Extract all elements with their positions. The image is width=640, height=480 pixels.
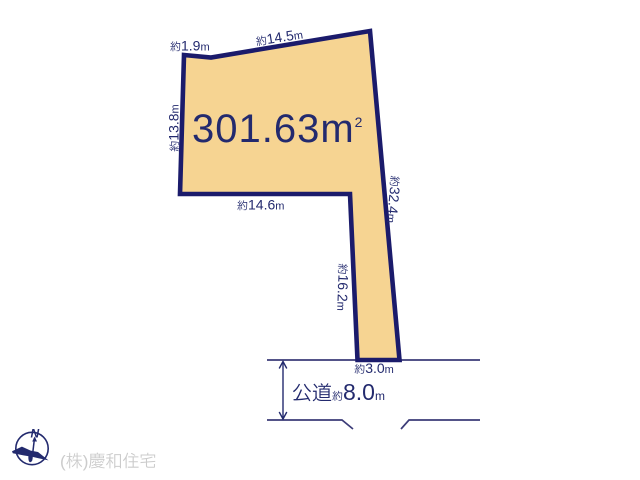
svg-text:(: ( [60,452,66,471]
svg-text:N: N [31,427,40,441]
svg-text:301.63m2: 301.63m2 [192,107,363,151]
svg-text:): ) [83,452,89,471]
